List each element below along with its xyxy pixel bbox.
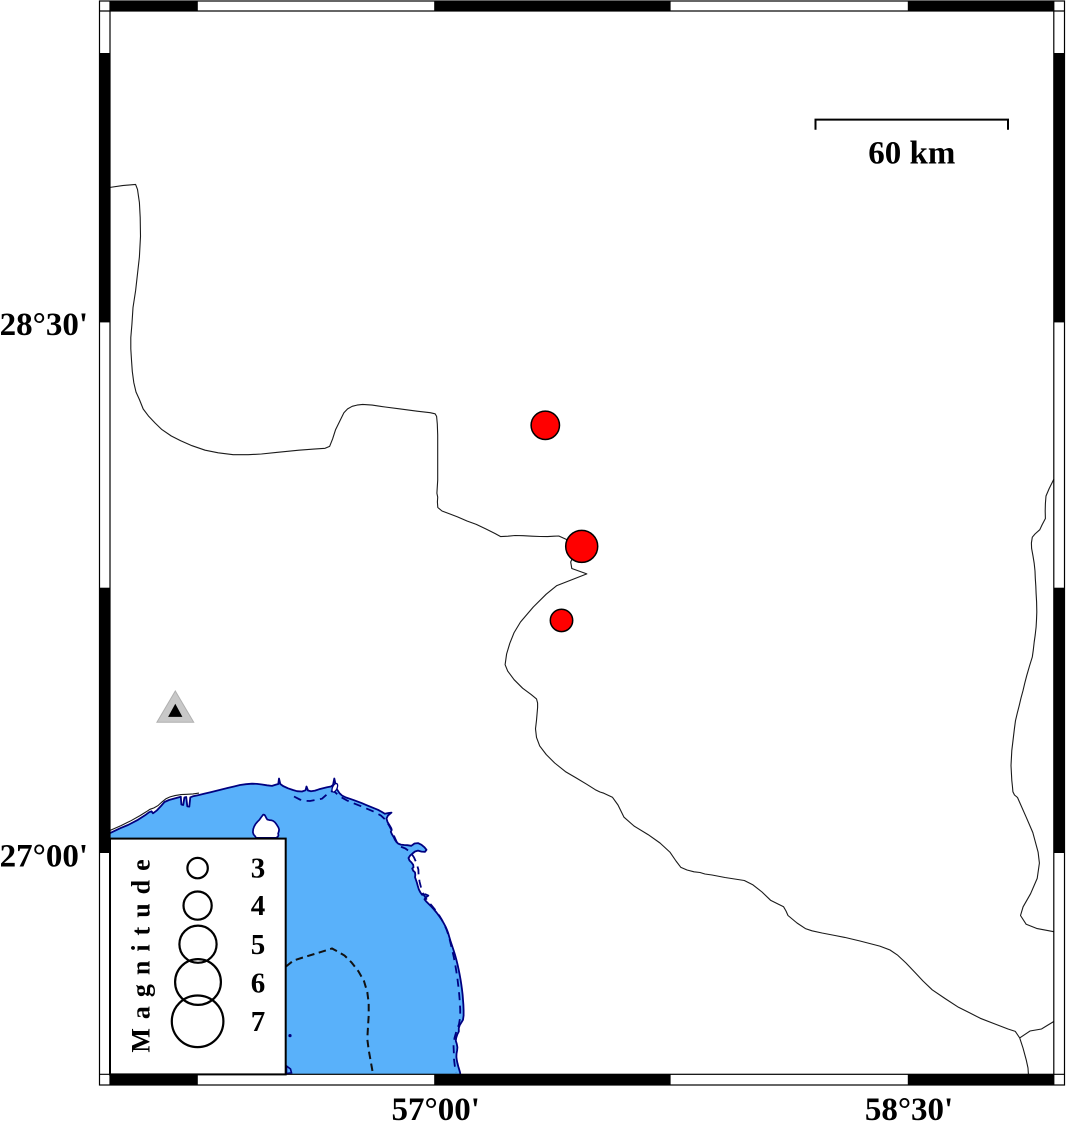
svg-text:5: 5 [251, 929, 266, 961]
svg-text:28°30': 28°30' [0, 307, 88, 343]
svg-text:6: 6 [251, 967, 266, 999]
svg-text:3: 3 [251, 853, 266, 885]
svg-text:Magnitude: Magnitude [127, 850, 156, 1052]
svg-text:27°00': 27°00' [0, 839, 88, 875]
svg-text:57°00': 57°00' [392, 1092, 480, 1123]
svg-text:58°30': 58°30' [865, 1092, 953, 1123]
svg-text:4: 4 [251, 890, 266, 922]
svg-text:7: 7 [251, 1006, 266, 1038]
svg-text:60 km: 60 km [868, 135, 955, 171]
